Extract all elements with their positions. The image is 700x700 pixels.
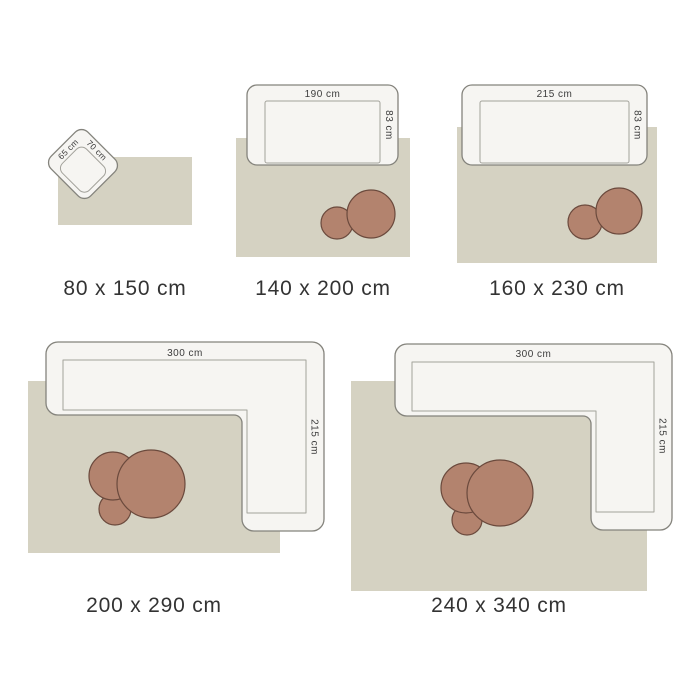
sofa-width-label: 300 cm: [516, 349, 552, 360]
rug-size-caption-140x200: 140 x 200 cm: [213, 277, 433, 301]
rug-size-caption-200x290: 200 x 290 cm: [44, 594, 264, 618]
size-diagram-160x230: 215 cm 83 cm: [450, 70, 665, 270]
size-diagram-80x150: 65 cm 70 cm: [28, 108, 222, 242]
sofa-depth-label: 215 cm: [309, 419, 320, 455]
size-diagram-240x340: 300 cm 215 cm: [345, 330, 690, 595]
size-diagram-200x290: 300 cm 215 cm: [20, 330, 340, 570]
side-table-large: [467, 460, 533, 526]
rug-size-caption-80x150: 80 x 150 cm: [15, 277, 235, 301]
sofa-width-label: 190 cm: [305, 89, 341, 100]
sofa-width-label: 215 cm: [537, 89, 573, 100]
rug-size-caption-240x340: 240 x 340 cm: [389, 594, 609, 618]
sofa-depth-label: 83 cm: [383, 110, 394, 140]
side-table-large: [347, 190, 395, 238]
size-diagram-140x200: 190 cm 83 cm: [225, 70, 420, 270]
sofa-depth-label: 215 cm: [657, 418, 668, 454]
sofa-width-label: 300 cm: [167, 348, 203, 359]
side-table-large: [117, 450, 185, 518]
rug-size-guide: 65 cm 70 cm 190 cm 83 cm 215 cm 83 cm 30…: [0, 0, 700, 700]
side-table-large: [596, 188, 642, 234]
sofa-depth-label: 83 cm: [632, 110, 643, 140]
rug-size-caption-160x230: 160 x 230 cm: [447, 277, 667, 301]
